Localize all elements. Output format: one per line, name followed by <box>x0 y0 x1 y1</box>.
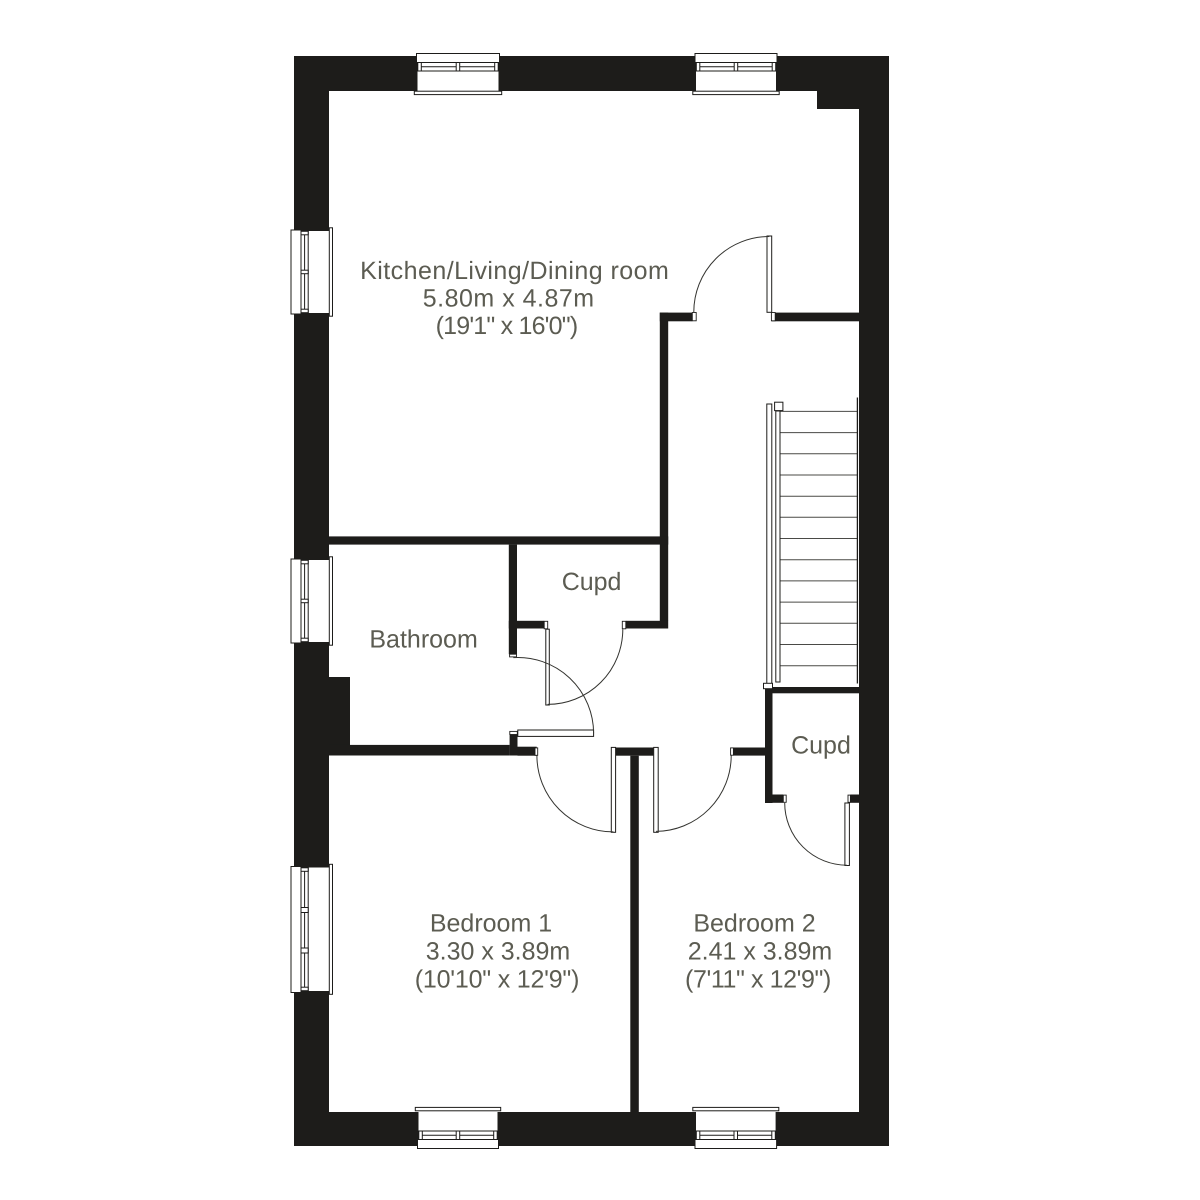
svg-text:Bathroom: Bathroom <box>369 626 477 654</box>
svg-text:(7'11" x 12'9"): (7'11" x 12'9") <box>685 965 831 993</box>
svg-text:(10'10" x 12'9"): (10'10" x 12'9") <box>415 965 579 993</box>
svg-text:(19'1" x 16'0"): (19'1" x 16'0") <box>436 312 578 340</box>
svg-text:3.30 x 3.89m: 3.30 x 3.89m <box>426 937 571 965</box>
svg-text:Bedroom 1: Bedroom 1 <box>430 909 552 937</box>
svg-text:Bedroom 2: Bedroom 2 <box>693 909 815 937</box>
svg-text:Cupd: Cupd <box>791 731 851 759</box>
svg-text:Cupd: Cupd <box>562 568 622 596</box>
svg-text:Kitchen/Living/Dining room: Kitchen/Living/Dining room <box>360 257 669 285</box>
svg-text:5.80m x 4.87m: 5.80m x 4.87m <box>423 284 595 312</box>
svg-text:2.41 x 3.89m: 2.41 x 3.89m <box>688 937 833 965</box>
